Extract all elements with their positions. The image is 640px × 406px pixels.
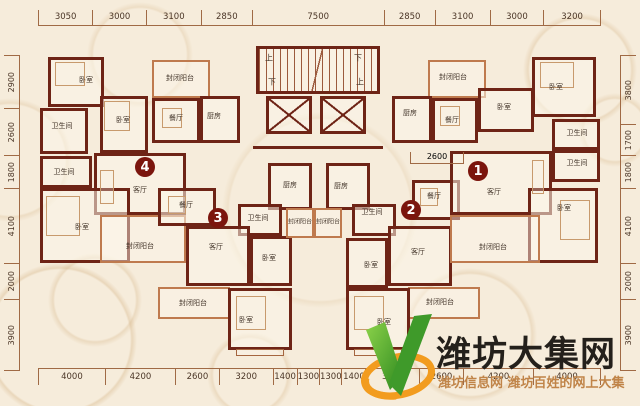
room-label: 餐厅 <box>427 191 441 201</box>
watermark-site-name: 潍坊大集网 <box>436 326 616 377</box>
stair-down-label: 下 <box>354 53 362 64</box>
room-label: 卫生间 <box>567 158 588 168</box>
dim-label: 2000 <box>7 271 16 291</box>
room-label: 卫生间 <box>248 213 269 223</box>
dim-segment: 4000 <box>38 368 105 385</box>
floor-plan: 3050 3000 3100 2850 7500 2850 3100 3000 … <box>0 0 640 406</box>
dim-label: 1700 <box>624 130 633 150</box>
dim-segment: 3000 <box>92 10 145 26</box>
room-label: 封闭阳台 <box>426 297 454 307</box>
room-label: 卧室 <box>262 253 276 263</box>
dim-segment: 2600 <box>4 108 20 155</box>
room-label: 卧室 <box>549 82 563 92</box>
dim-label: 2600 <box>7 122 16 142</box>
dim-segment: 1800 <box>620 155 636 188</box>
room-label: 卫生间 <box>567 128 588 138</box>
dim-segment: 3100 <box>146 10 201 26</box>
dim-segment: 3900 <box>4 299 20 370</box>
dim-label: 4100 <box>7 216 16 236</box>
room-label: 餐厅 <box>445 115 459 125</box>
room-outline <box>392 96 432 143</box>
dim-label: 1800 <box>624 162 633 182</box>
room-label: 卧室 <box>364 260 378 270</box>
elevator-shaft <box>320 96 366 134</box>
room-label: 封闭阳台 <box>439 72 467 82</box>
room-label: 客厅 <box>209 242 223 252</box>
stair-up-label: 上 <box>265 53 273 64</box>
dim-label: 3800 <box>624 80 633 100</box>
dim-segment: 1400 <box>273 368 297 385</box>
dim-segment: 7500 <box>252 10 384 26</box>
room-label: 厨房 <box>403 108 417 118</box>
room-label: 卫生间 <box>52 121 73 131</box>
dim-segment: 1300 <box>297 368 319 385</box>
room-label: 厨房 <box>334 181 348 191</box>
room-label: 卧室 <box>497 102 511 112</box>
dim-segment: 1700 <box>620 124 636 155</box>
dim-segment: 1800 <box>4 155 20 188</box>
dim-segment: 3050 <box>38 10 92 26</box>
room-label: 封闭阳台 <box>126 241 154 251</box>
corridor-wall <box>253 146 383 149</box>
room-label: 厨房 <box>283 180 297 190</box>
room-label: 客厅 <box>411 247 425 257</box>
dim-segment: 2850 <box>384 10 435 26</box>
dim-segment: 4100 <box>4 188 20 262</box>
room-label: 卧室 <box>75 222 89 232</box>
room-label: 封闭阳台 <box>288 217 312 226</box>
dim-segment: 2600 <box>175 368 219 385</box>
room-label: 客厅 <box>133 185 147 195</box>
dim-segment: 4200 <box>105 368 175 385</box>
watermark: 潍坊大集网 潍坊信息网 潍坊百姓的网上大集 <box>352 310 640 406</box>
dim-segment: 3100 <box>435 10 490 26</box>
room-label: 封闭阳台 <box>166 73 194 83</box>
room-label: 餐厅 <box>169 113 183 123</box>
room-label: 客厅 <box>487 187 501 197</box>
dim-label: 4100 <box>624 216 633 236</box>
room-label: 封闭阳台 <box>316 217 340 226</box>
room-outline <box>186 226 250 286</box>
watermark-tagline: 潍坊信息网 潍坊百姓的网上大集 <box>438 372 625 391</box>
dim-segment: 3800 <box>620 55 636 124</box>
room-label: 卧室 <box>116 115 130 125</box>
furniture-sofa <box>100 170 114 204</box>
dim-label: 2000 <box>624 271 633 291</box>
room-label: 卧室 <box>79 75 93 85</box>
dim-label: 1800 <box>7 162 16 182</box>
unit-badge-2: 2 <box>401 200 421 220</box>
dim-segment: 3000 <box>490 10 543 26</box>
room-outline <box>40 108 88 154</box>
dimension-chain-left: 2900 2600 1800 4100 2000 3900 <box>4 55 20 371</box>
dim-segment: 3200 <box>543 10 600 26</box>
room-outline <box>326 163 370 210</box>
dim-segment: 2850 <box>201 10 252 26</box>
unit-badge-4: 4 <box>135 157 155 177</box>
dim-segment: 3200 <box>219 368 273 385</box>
dim-segment: 4100 <box>620 188 636 262</box>
dimension-chain-top: 3050 3000 3100 2850 7500 2850 3100 3000 … <box>38 10 601 26</box>
room-label: 卫生间 <box>362 207 383 217</box>
unit-badge-3: 3 <box>208 208 228 228</box>
room-label: 封闭阳台 <box>479 242 507 252</box>
balcony-outline <box>450 215 540 263</box>
dim-segment: 2000 <box>4 263 20 300</box>
dim-label: 2900 <box>7 72 16 92</box>
room-label: 卫生间 <box>54 167 75 177</box>
room-label: 卧室 <box>239 315 253 325</box>
room-label: 卧室 <box>557 203 571 213</box>
interior-dimension: 2600 <box>410 152 464 164</box>
room-label: 餐厅 <box>179 200 193 210</box>
room-label: 封闭阳台 <box>179 298 207 308</box>
furniture-sofa <box>532 160 544 194</box>
dim-segment: 2000 <box>620 263 636 300</box>
dim-segment: 2900 <box>4 55 20 108</box>
elevator-shaft <box>266 96 312 134</box>
unit-badge-1: 1 <box>468 161 488 181</box>
stair-up-label: 上 <box>356 77 364 88</box>
dim-segment: 1300 <box>319 368 341 385</box>
stair-down-label: 下 <box>268 77 276 88</box>
room-label: 厨房 <box>207 111 221 121</box>
window-bay <box>236 349 284 356</box>
dim-label: 3900 <box>7 325 16 345</box>
v-logo-icon <box>360 314 436 402</box>
